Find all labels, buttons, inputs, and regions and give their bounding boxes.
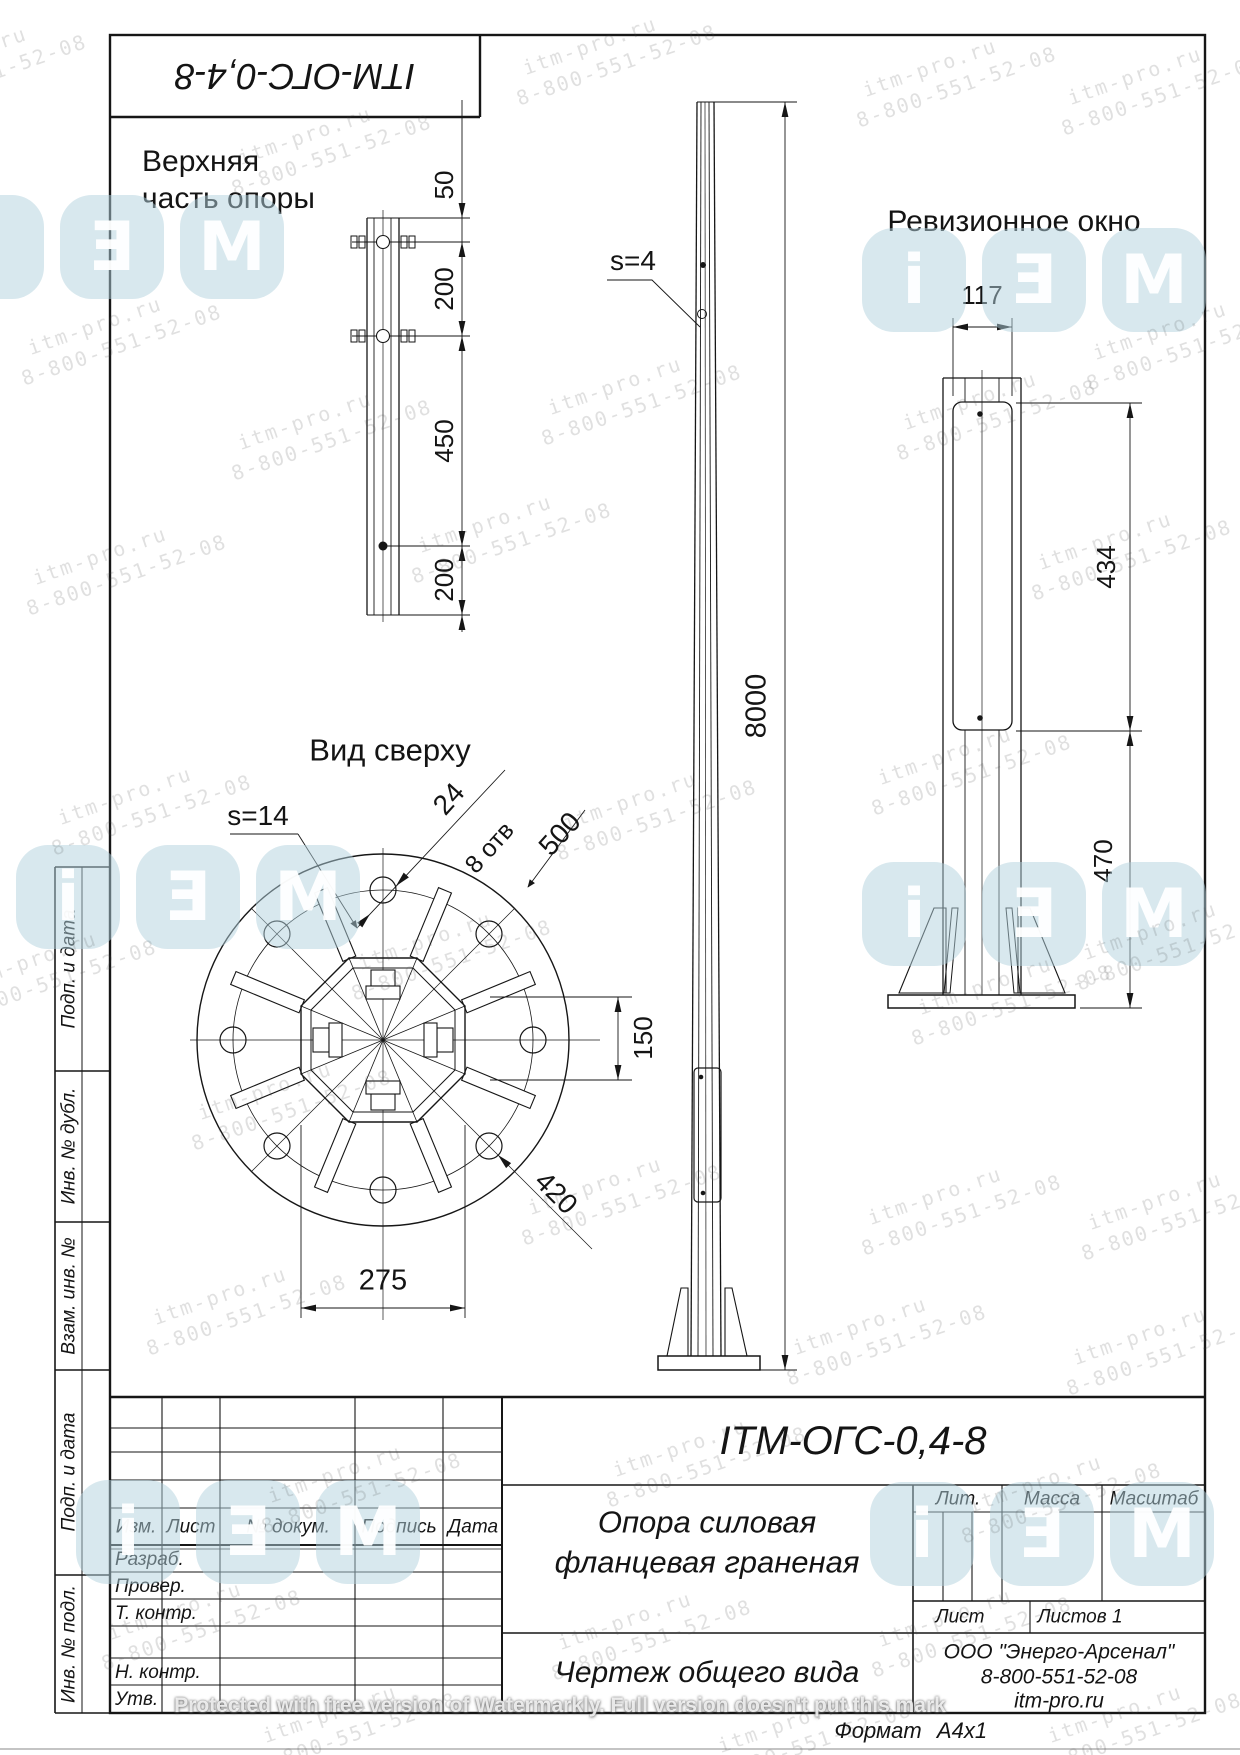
tb-scale: Масштаб: [1110, 1490, 1199, 1509]
upper-view-title-line2: часть опоры: [142, 184, 315, 214]
dim-50: 50: [431, 171, 457, 200]
tb-name-line2: фланцевая граненая: [555, 1547, 860, 1578]
sheet-frame: [110, 35, 1205, 1713]
tb-site: itm-pro.ru: [1014, 1691, 1104, 1712]
dim-150: 150: [630, 1016, 656, 1059]
upper-view-title-line1: Верхняя: [142, 147, 259, 177]
dim-470: 470: [1090, 839, 1116, 882]
plan-view-title: Вид сверху: [309, 735, 470, 766]
dim-434: 434: [1093, 545, 1119, 588]
tb-designation: ITM-ОГС-0,4-8: [719, 1421, 986, 1461]
plan-view-linework: [190, 770, 632, 1320]
tb-col-docnum: № докум.: [246, 1518, 330, 1537]
sidebar-label-podp-data-1: Подп. и дата: [60, 910, 79, 1029]
dim-450: 450: [431, 419, 457, 462]
tb-row-tkontr: Т. контр.: [115, 1604, 197, 1623]
tb-col-izm: Изм.: [116, 1518, 157, 1537]
sidebar-label-inv-podl: Инв. № подл.: [60, 1585, 79, 1703]
tb-row-prover: Провер.: [115, 1577, 186, 1596]
sidebar-label-podp-data-2: Подп. и дата: [60, 1413, 79, 1532]
format-label: Формат: [834, 1720, 921, 1742]
tb-col-list: Лист: [167, 1518, 216, 1537]
dim-117: 117: [961, 282, 1002, 308]
dim-8000: 8000: [743, 674, 772, 739]
tb-company: ООО "Энерго-Арсенал": [944, 1642, 1175, 1663]
side-view-linework: [888, 318, 1142, 1008]
tb-mass: Масса: [1024, 1490, 1080, 1509]
side-view-title: Ревизионное окно: [887, 207, 1140, 237]
tb-doc-type: Чертеж общего вида: [555, 1658, 860, 1688]
tb-row-nkontr: Н. контр.: [115, 1663, 201, 1682]
sidebar-label-vzam-inv: Взам. инв. №: [60, 1237, 79, 1355]
dim-200-bottom: 200: [431, 558, 457, 601]
tb-col-podpis: Подпись: [361, 1518, 436, 1537]
tb-row-razrab: Разраб.: [115, 1550, 184, 1569]
tb-sheets: Листов 1: [1037, 1608, 1122, 1627]
dim-275: 275: [359, 1267, 407, 1296]
tb-col-data: Дата: [448, 1518, 498, 1537]
wall-thickness-label: s=4: [610, 247, 656, 275]
tb-row-utv: Утв.: [115, 1690, 158, 1709]
tb-lit: Лит.: [936, 1490, 981, 1509]
tb-sheet: Лист: [936, 1608, 985, 1627]
tb-name-line1: Опора силовая: [598, 1507, 816, 1538]
watermarkly-protect-text: Protected with free version of Watermark…: [174, 1694, 946, 1718]
sidebar-label-inv-dubl: Инв. № дубл.: [60, 1088, 79, 1205]
drawing-sheet: ITM-ОГС-0,4-8 Верхняя часть опоры 50 200…: [0, 0, 1240, 1755]
flange-thickness-label: s=14: [227, 802, 289, 830]
tb-phone: 8-800-551-52-08: [981, 1667, 1137, 1688]
format-value: А4х1: [937, 1720, 987, 1742]
mirrored-stamp-code: ITM-ОГС-0,4-8: [175, 58, 415, 94]
dim-200-top: 200: [431, 267, 457, 310]
